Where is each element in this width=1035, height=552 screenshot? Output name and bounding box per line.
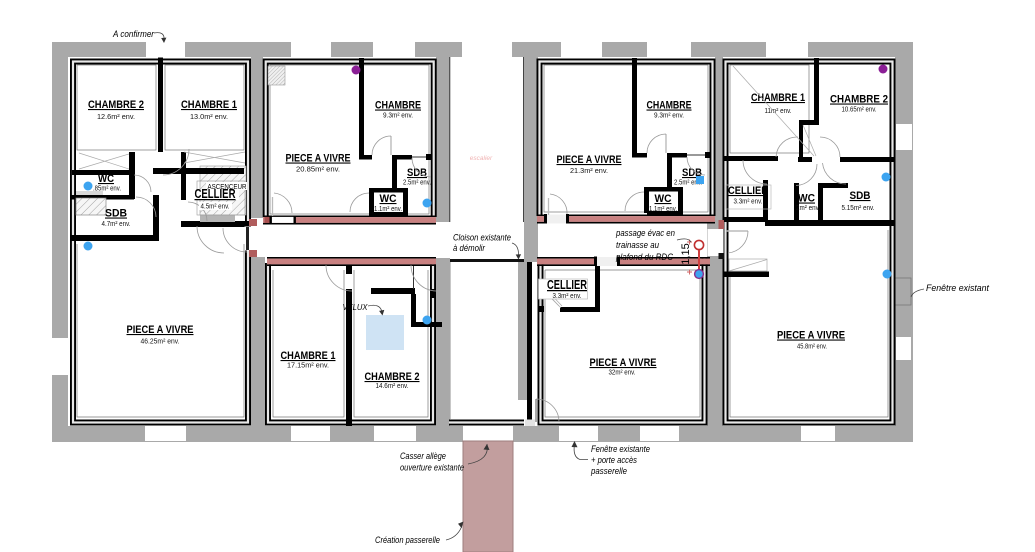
svg-text:passage évac en: passage évac en xyxy=(615,228,675,239)
svg-text:46.25m² env.: 46.25m² env. xyxy=(141,337,180,346)
svg-text:SDB: SDB xyxy=(850,190,871,202)
svg-text:13.0m² env.: 13.0m² env. xyxy=(190,112,228,121)
svg-text:45.8m² env.: 45.8m² env. xyxy=(797,342,827,351)
svg-text:21.3m² env.: 21.3m² env. xyxy=(570,166,608,175)
svg-text:1,15: 1,15 xyxy=(680,243,692,264)
svg-text:3.3m² env.: 3.3m² env. xyxy=(734,197,763,206)
svg-text:CHAMBRE 2: CHAMBRE 2 xyxy=(88,99,144,111)
svg-text:2m² env.: 2m² env. xyxy=(796,203,820,212)
svg-text:11m² env.: 11m² env. xyxy=(765,106,792,115)
svg-text:PIECE A VIVRE: PIECE A VIVRE xyxy=(127,324,194,336)
svg-text:20.85m² env.: 20.85m² env. xyxy=(296,165,340,174)
svg-text:Casser allège: Casser allège xyxy=(400,451,446,462)
svg-text:2.5m² env.: 2.5m² env. xyxy=(403,178,431,187)
svg-text:PIECE A VIVRE: PIECE A VIVRE xyxy=(286,153,351,165)
svg-text:32m² env.: 32m² env. xyxy=(609,368,636,377)
svg-text:PIECE A VIVRE: PIECE A VIVRE xyxy=(777,330,845,342)
svg-text:1.1m² env.: 1.1m² env. xyxy=(649,204,677,213)
svg-text:3.3m² env.: 3.3m² env. xyxy=(553,291,582,300)
svg-text:Fenêtre existant: Fenêtre existant xyxy=(926,283,989,294)
svg-text:9.3m² env.: 9.3m² env. xyxy=(654,111,684,120)
svg-text:à démolir: à démolir xyxy=(453,243,486,254)
svg-text:Fenêtre existante: Fenêtre existante xyxy=(591,444,650,455)
svg-text:PIECE A VIVRE: PIECE A VIVRE xyxy=(557,154,622,166)
svg-text:10.65m² env.: 10.65m² env. xyxy=(842,105,877,114)
svg-text:CELLIER: CELLIER xyxy=(195,187,236,201)
svg-text:trainasse au: trainasse au xyxy=(616,240,660,251)
svg-text:.85m² env.: .85m² env. xyxy=(93,184,121,193)
svg-text:escalier: escalier xyxy=(470,155,493,162)
svg-text:5.15m² env.: 5.15m² env. xyxy=(842,203,875,212)
svg-text:4.7m² env.: 4.7m² env. xyxy=(102,219,131,228)
svg-text:ouverture existante: ouverture existante xyxy=(400,463,464,474)
svg-text:plafond du RDC: plafond du RDC xyxy=(615,252,673,263)
svg-text:+ porte accès: + porte accès xyxy=(591,455,637,466)
svg-text:CELLIER: CELLIER xyxy=(547,278,587,292)
svg-text:CELLIER: CELLIER xyxy=(728,185,768,197)
svg-text:12.6m² env.: 12.6m² env. xyxy=(97,112,135,121)
svg-text:17.15m² env.: 17.15m² env. xyxy=(287,361,329,370)
svg-text:A confirmer: A confirmer xyxy=(112,29,155,40)
svg-text:VELUX: VELUX xyxy=(343,303,369,312)
svg-text:9.3m² env.: 9.3m² env. xyxy=(383,111,413,120)
svg-text:Création passerelle: Création passerelle xyxy=(375,535,440,546)
svg-text:1.1m² env.: 1.1m² env. xyxy=(374,204,402,213)
svg-text:14.6m² env.: 14.6m² env. xyxy=(376,381,409,390)
svg-text:Cloison existante: Cloison existante xyxy=(453,233,511,244)
svg-text:CHAMBRE 1: CHAMBRE 1 xyxy=(751,92,805,104)
svg-text:CHAMBRE 1: CHAMBRE 1 xyxy=(181,99,237,111)
svg-text:passerelle: passerelle xyxy=(590,466,627,477)
svg-text:4.5m² env.: 4.5m² env. xyxy=(201,202,230,211)
svg-text:SDB: SDB xyxy=(105,208,127,220)
